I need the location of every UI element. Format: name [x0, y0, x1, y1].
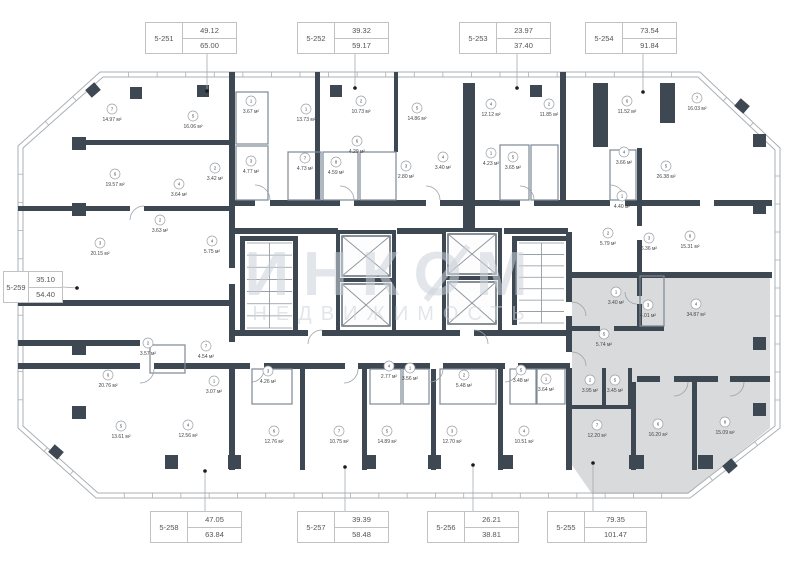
unit-id: 5-256	[428, 512, 465, 542]
room-label: 611.52 м²	[618, 96, 637, 115]
unit-callout-5-255[interactable]: 5-255 79.35 101.47	[547, 511, 647, 543]
svg-text:4.77 м²: 4.77 м²	[243, 169, 260, 175]
room-label: 43.40 м²	[435, 152, 452, 171]
unit-living-area: 39.39	[335, 512, 388, 527]
unit-living-area: 47.05	[188, 512, 241, 527]
svg-text:3.42 м²: 3.42 м²	[207, 176, 224, 182]
floor-plan-page: ИНКОМ НЕДВИЖИМОСТЬ 714.97 м²619.57 м²516…	[0, 0, 800, 566]
svg-text:14.97 м²: 14.97 м²	[102, 117, 121, 123]
room-label: 513.61 м²	[111, 421, 130, 440]
svg-text:26.38 м²: 26.38 м²	[656, 174, 675, 180]
room-label: 53.65 м²	[505, 152, 522, 171]
svg-text:4.54 м²: 4.54 м²	[198, 354, 215, 360]
room-label: 34.77 м²	[243, 156, 260, 175]
unit-total-area: 101.47	[585, 527, 646, 543]
unit-id: 5-255	[548, 512, 585, 542]
watermark: ИНКОМ НЕДВИЖИМОСТЬ	[244, 240, 541, 325]
svg-text:4.23 м²: 4.23 м²	[483, 161, 500, 167]
room-label: 13.07 м²	[206, 376, 223, 395]
svg-text:4.01 м²: 4.01 м²	[640, 313, 657, 319]
svg-text:2.77 м²: 2.77 м²	[381, 374, 398, 380]
svg-text:3.95 м²: 3.95 м²	[582, 388, 599, 394]
unit-total-area: 37.40	[497, 38, 550, 54]
svg-text:20.15 м²: 20.15 м²	[90, 251, 109, 257]
watermark-subtitle: НЕДВИЖИМОСТЬ	[252, 303, 533, 325]
unit-total-area: 59.17	[335, 38, 388, 54]
unit-id: 5-251	[146, 23, 183, 53]
unit-total-area: 63.84	[188, 527, 241, 543]
unit-callout-5-257[interactable]: 5-257 39.39 58.48	[297, 511, 389, 543]
unit-living-area: 73.54	[623, 23, 676, 38]
room-label: 74.54 м²	[198, 341, 215, 360]
room-label: 74.73 м²	[297, 153, 314, 172]
svg-text:3.67 м²: 3.67 м²	[243, 109, 260, 115]
room-label: 619.57 м²	[105, 169, 124, 188]
unit-callout-5-254[interactable]: 5-254 73.54 91.84	[585, 22, 677, 54]
room-label: 526.38 м²	[656, 161, 675, 180]
svg-text:12.56 м²: 12.56 м²	[178, 433, 197, 439]
svg-text:10.73 м²: 10.73 м²	[351, 109, 370, 115]
svg-text:16.03 м²: 16.03 м²	[687, 106, 706, 112]
svg-text:10.75 м²: 10.75 м²	[329, 439, 348, 445]
room-label: 64.29 м²	[349, 136, 366, 155]
svg-text:3.48 м²: 3.48 м²	[513, 378, 530, 384]
svg-text:12.76 м²: 12.76 м²	[264, 439, 283, 445]
svg-text:3.40 м²: 3.40 м²	[608, 300, 625, 306]
room-label: 211.85 м²	[540, 99, 559, 118]
svg-text:5.48 м²: 5.48 м²	[456, 383, 473, 389]
unit-id: 5-254	[586, 23, 623, 53]
unit-id: 5-257	[298, 512, 335, 542]
unit-living-area: 49.12	[183, 23, 236, 38]
svg-text:5.74 м²: 5.74 м²	[596, 342, 613, 348]
room-label: 113.73 м²	[296, 104, 315, 123]
room-label: 514.89 м²	[377, 426, 396, 445]
unit-living-area: 23.97	[497, 23, 550, 38]
unit-total-area: 65.00	[183, 38, 236, 54]
svg-text:4.59 м²: 4.59 м²	[328, 170, 345, 176]
svg-text:5.79 м²: 5.79 м²	[600, 241, 617, 247]
svg-text:3.66 м²: 3.66 м²	[616, 160, 633, 166]
room-label: 412.12 м²	[481, 99, 500, 118]
room-label: 23.57 м²	[140, 338, 157, 357]
room-label: 410.51 м²	[514, 426, 533, 445]
unit-living-area: 79.35	[585, 512, 646, 527]
unit-id: 5-258	[151, 512, 188, 542]
room-label: 815.31 м²	[680, 231, 699, 250]
svg-text:3.40 м²: 3.40 м²	[435, 165, 452, 171]
svg-text:11.52 м²: 11.52 м²	[618, 109, 637, 115]
unit-id: 5-253	[460, 23, 497, 53]
svg-text:13.73 м²: 13.73 м²	[296, 117, 315, 123]
room-label: 25.48 м²	[456, 370, 473, 389]
svg-text:3.56 м²: 3.56 м²	[402, 376, 419, 382]
watermark-brand: ИНКОМ	[244, 240, 541, 309]
room-label: 612.76 м²	[264, 426, 283, 445]
svg-text:3.63 м²: 3.63 м²	[152, 228, 169, 234]
unit-living-area: 35.10	[29, 272, 62, 287]
room-label: 13.67 м²	[243, 96, 260, 115]
svg-text:15.09 м²: 15.09 м²	[715, 430, 734, 436]
room-label: 36.36 м²	[641, 233, 658, 252]
svg-text:14.86 м²: 14.86 м²	[407, 116, 426, 122]
svg-text:3.45 м²: 3.45 м²	[607, 388, 624, 394]
svg-text:16.06 м²: 16.06 м²	[183, 124, 202, 130]
room-label: 14.23 м²	[483, 148, 500, 167]
room-label: 514.86 м²	[407, 103, 426, 122]
svg-text:13.61 м²: 13.61 м²	[111, 434, 130, 440]
svg-text:4.29 м²: 4.29 м²	[349, 149, 366, 155]
svg-text:19.57 м²: 19.57 м²	[105, 182, 124, 188]
unit-total-area: 54.40	[29, 287, 62, 303]
svg-text:4.26 м²: 4.26 м²	[260, 379, 277, 385]
room-label: 23.42 м²	[207, 163, 224, 182]
unit-id: 5-259	[4, 272, 29, 302]
svg-text:3.65 м²: 3.65 м²	[505, 165, 522, 171]
room-label: 412.56 м²	[178, 420, 197, 439]
svg-text:15.31 м²: 15.31 м²	[680, 244, 699, 250]
svg-text:3.07 м²: 3.07 м²	[206, 389, 223, 395]
room-label: 714.97 м²	[102, 104, 121, 123]
svg-text:12.20 м²: 12.20 м²	[587, 433, 606, 439]
room-label: 320.15 м²	[90, 238, 109, 257]
unit-callout-5-258[interactable]: 5-258 47.05 63.84	[150, 511, 242, 543]
room-label: 716.03 м²	[687, 93, 706, 112]
unit-callout-5-259[interactable]: 5-259 35.10 54.40	[3, 271, 63, 303]
room-label: 620.76 м²	[98, 370, 117, 389]
svg-text:10.51 м²: 10.51 м²	[514, 439, 533, 445]
svg-text:3.57 м²: 3.57 м²	[140, 351, 157, 357]
svg-text:20.76 м²: 20.76 м²	[98, 383, 117, 389]
svg-text:4.40 м²: 4.40 м²	[614, 204, 631, 210]
svg-text:14.89 м²: 14.89 м²	[377, 439, 396, 445]
unit-living-area: 26.21	[465, 512, 518, 527]
svg-text:12.12 м²: 12.12 м²	[481, 112, 500, 118]
svg-text:4.73 м²: 4.73 м²	[297, 166, 314, 172]
room-label: 45.75 м²	[204, 236, 221, 255]
floor-plan: ИНКОМ НЕДВИЖИМОСТЬ 714.97 м²619.57 м²516…	[0, 0, 800, 566]
room-label: 710.75 м²	[329, 426, 348, 445]
svg-text:2.80 м²: 2.80 м²	[398, 174, 415, 180]
unit-total-area: 91.84	[623, 38, 676, 54]
svg-text:3.64 м²: 3.64 м²	[171, 192, 188, 198]
unit-total-area: 38.81	[465, 527, 518, 543]
svg-text:5.75 м²: 5.75 м²	[204, 249, 221, 255]
svg-text:3.64 м²: 3.64 м²	[538, 387, 555, 393]
svg-text:6.36 м²: 6.36 м²	[641, 246, 658, 252]
room-label: 516.06 м²	[183, 111, 202, 130]
unit-callout-5-251[interactable]: 5-251 49.12 65.00	[145, 22, 237, 54]
room-label: 210.73 м²	[351, 96, 370, 115]
room-label: 32.80 м²	[398, 161, 415, 180]
unit-callout-5-253[interactable]: 5-253 23.97 37.40	[459, 22, 551, 54]
svg-text:12.70 м²: 12.70 м²	[442, 439, 461, 445]
svg-text:16.20 м²: 16.20 м²	[648, 432, 667, 438]
room-label: 13.64 м²	[538, 374, 555, 393]
svg-text:11.85 м²: 11.85 м²	[540, 112, 559, 118]
room-label: 25.79 м²	[600, 228, 617, 247]
unit-callout-5-252[interactable]: 5-252 39.32 59.17	[297, 22, 389, 54]
unit-total-area: 58.48	[335, 527, 388, 543]
unit-callout-5-256[interactable]: 5-256 26.21 38.81	[427, 511, 519, 543]
room-label: 84.59 м²	[328, 157, 345, 176]
selected-apartment-5-255[interactable]	[572, 276, 770, 494]
room-label: 43.64 м²	[171, 179, 188, 198]
room-label: 23.63 м²	[152, 215, 169, 234]
svg-text:34.87 м²: 34.87 м²	[686, 312, 705, 318]
unit-living-area: 39.32	[335, 23, 388, 38]
room-label: 312.70 м²	[442, 426, 461, 445]
unit-id: 5-252	[298, 23, 335, 53]
